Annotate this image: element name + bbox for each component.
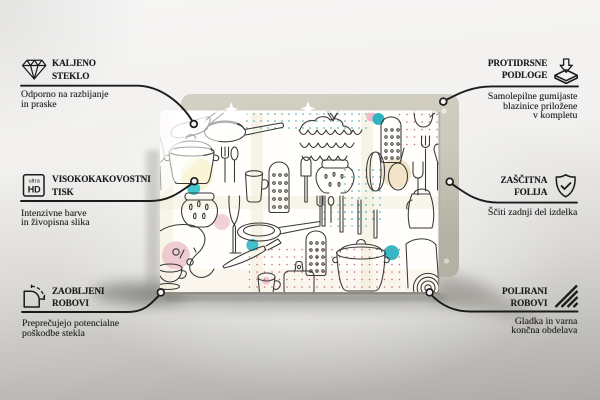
svg-text:HD: HD [28,185,41,195]
